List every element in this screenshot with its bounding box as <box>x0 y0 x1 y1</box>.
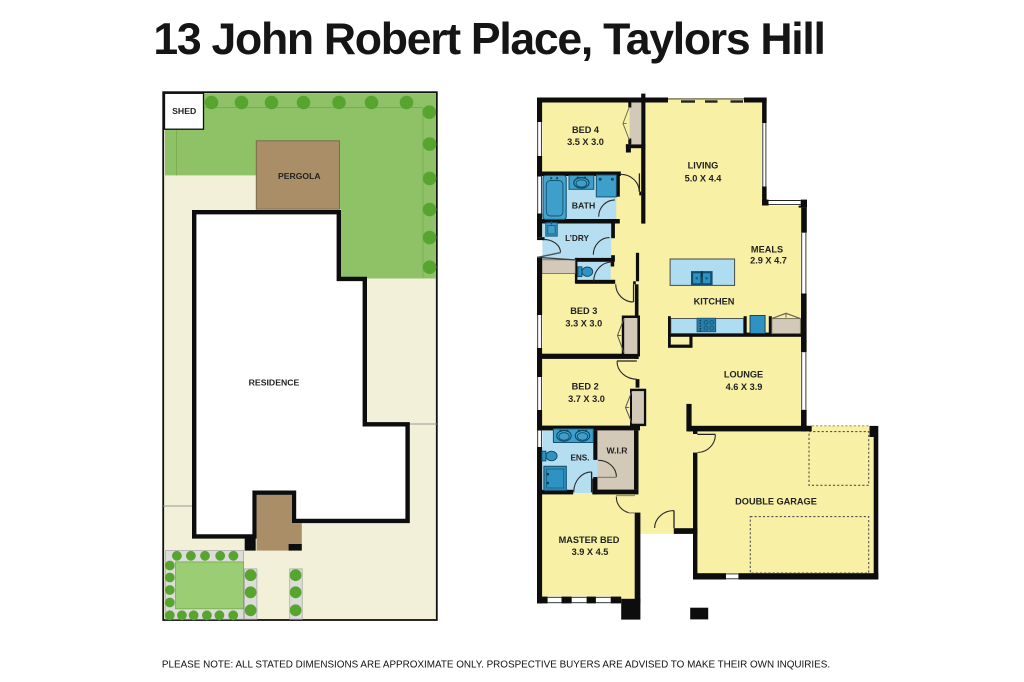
svg-text:RESIDENCE: RESIDENCE <box>249 378 300 388</box>
svg-text:ENS.: ENS. <box>570 454 589 463</box>
svg-text:KITCHEN: KITCHEN <box>694 297 735 307</box>
svg-text:L’DRY: L’DRY <box>565 234 589 243</box>
svg-text:MASTER BED: MASTER BED <box>559 535 620 545</box>
svg-text:13 John Robert Place, Taylors: 13 John Robert Place, Taylors Hill <box>153 15 824 64</box>
svg-text:DOUBLE GARAGE: DOUBLE GARAGE <box>735 497 817 507</box>
svg-text:W.I.R: W.I.R <box>606 446 628 456</box>
svg-text:MEALS: MEALS <box>751 245 783 255</box>
svg-text:BED 2: BED 2 <box>572 382 599 392</box>
svg-text:BED 4: BED 4 <box>572 125 600 135</box>
svg-text:5.0 X 4.4: 5.0 X 4.4 <box>685 174 723 184</box>
svg-text:3.3 X 3.0: 3.3 X 3.0 <box>565 318 602 328</box>
svg-text:SHED: SHED <box>172 106 196 116</box>
svg-text:3.9 X 4.5: 3.9 X 4.5 <box>572 547 609 557</box>
svg-text:BATH: BATH <box>572 201 595 211</box>
svg-text:LOUNGE: LOUNGE <box>724 370 763 380</box>
svg-text:2.9 X 4.7: 2.9 X 4.7 <box>750 256 787 266</box>
svg-text:3.5 X 3.0: 3.5 X 3.0 <box>567 137 604 147</box>
svg-text:LIVING: LIVING <box>688 161 719 171</box>
svg-text:BED 3: BED 3 <box>570 306 597 316</box>
svg-text:PLEASE NOTE: ALL STATED DIMENS: PLEASE NOTE: ALL STATED DIMENSIONS ARE A… <box>162 660 830 671</box>
svg-text:4.6 X 3.9: 4.6 X 3.9 <box>726 382 763 392</box>
svg-text:PERGOLA: PERGOLA <box>278 171 321 181</box>
svg-text:3.7 X 3.0: 3.7 X 3.0 <box>568 394 605 404</box>
